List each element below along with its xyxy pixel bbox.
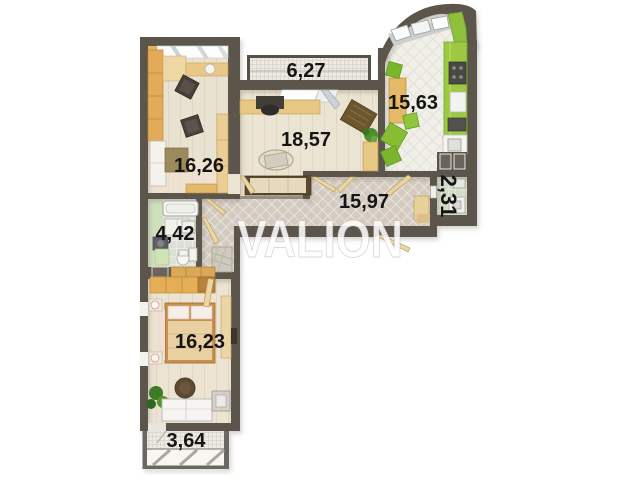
svg-text:16,23: 16,23 [175, 331, 225, 353]
svg-text:16,26: 16,26 [174, 155, 224, 177]
svg-text:VALION: VALION [237, 210, 403, 269]
svg-text:15,63: 15,63 [388, 92, 438, 114]
svg-text:2,31: 2,31 [436, 175, 461, 218]
svg-text:4,42: 4,42 [156, 223, 195, 245]
svg-text:6,27: 6,27 [287, 60, 326, 82]
svg-text:18,57: 18,57 [281, 129, 331, 151]
svg-text:3,64: 3,64 [167, 430, 207, 452]
